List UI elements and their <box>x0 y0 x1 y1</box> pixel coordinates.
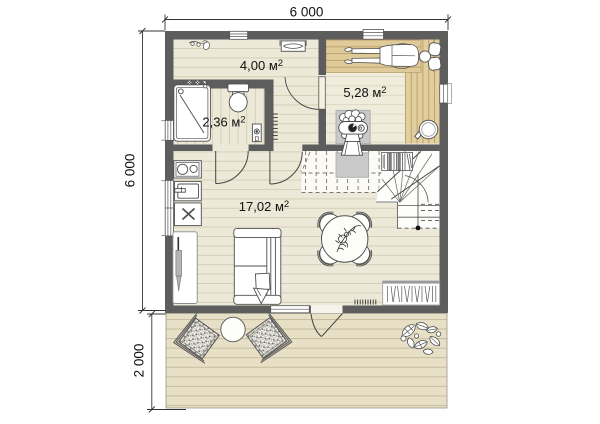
svg-text:2 000: 2 000 <box>132 344 147 378</box>
svg-text:5,28 м2: 5,28 м2 <box>343 85 386 100</box>
svg-text:6 000: 6 000 <box>123 154 138 188</box>
svg-text:17,02 м2: 17,02 м2 <box>239 199 289 214</box>
svg-text:4,00 м2: 4,00 м2 <box>240 58 283 73</box>
svg-text:2,36 м2: 2,36 м2 <box>202 115 245 130</box>
svg-text:6 000: 6 000 <box>290 5 324 20</box>
